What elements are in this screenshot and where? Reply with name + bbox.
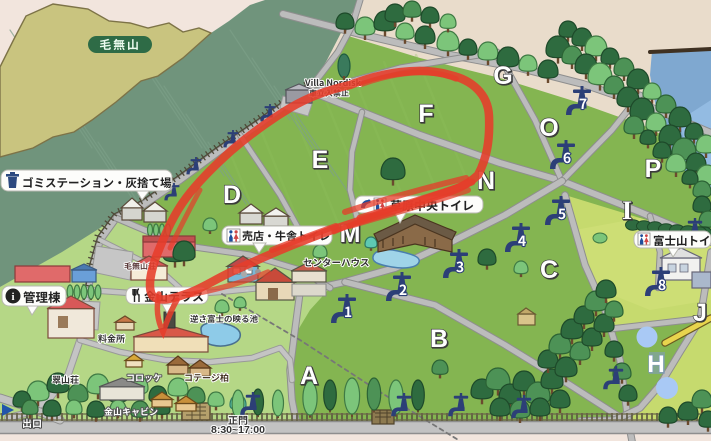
svg-text:A: A xyxy=(300,362,318,390)
svg-text:D: D xyxy=(223,181,241,209)
svg-text:O: O xyxy=(539,114,558,142)
svg-text:i: i xyxy=(11,291,14,303)
svg-text:P: P xyxy=(645,155,662,183)
svg-text:G: G xyxy=(493,62,512,90)
svg-text:C: C xyxy=(540,256,558,284)
svg-text:F: F xyxy=(418,100,433,128)
svg-text:E: E xyxy=(312,146,329,174)
svg-text:8:30~17:00: 8:30~17:00 xyxy=(211,424,265,436)
svg-text:I: I xyxy=(622,196,632,225)
svg-text:H: H xyxy=(647,351,664,378)
svg-text:B: B xyxy=(430,325,448,353)
svg-text:J: J xyxy=(693,299,707,327)
